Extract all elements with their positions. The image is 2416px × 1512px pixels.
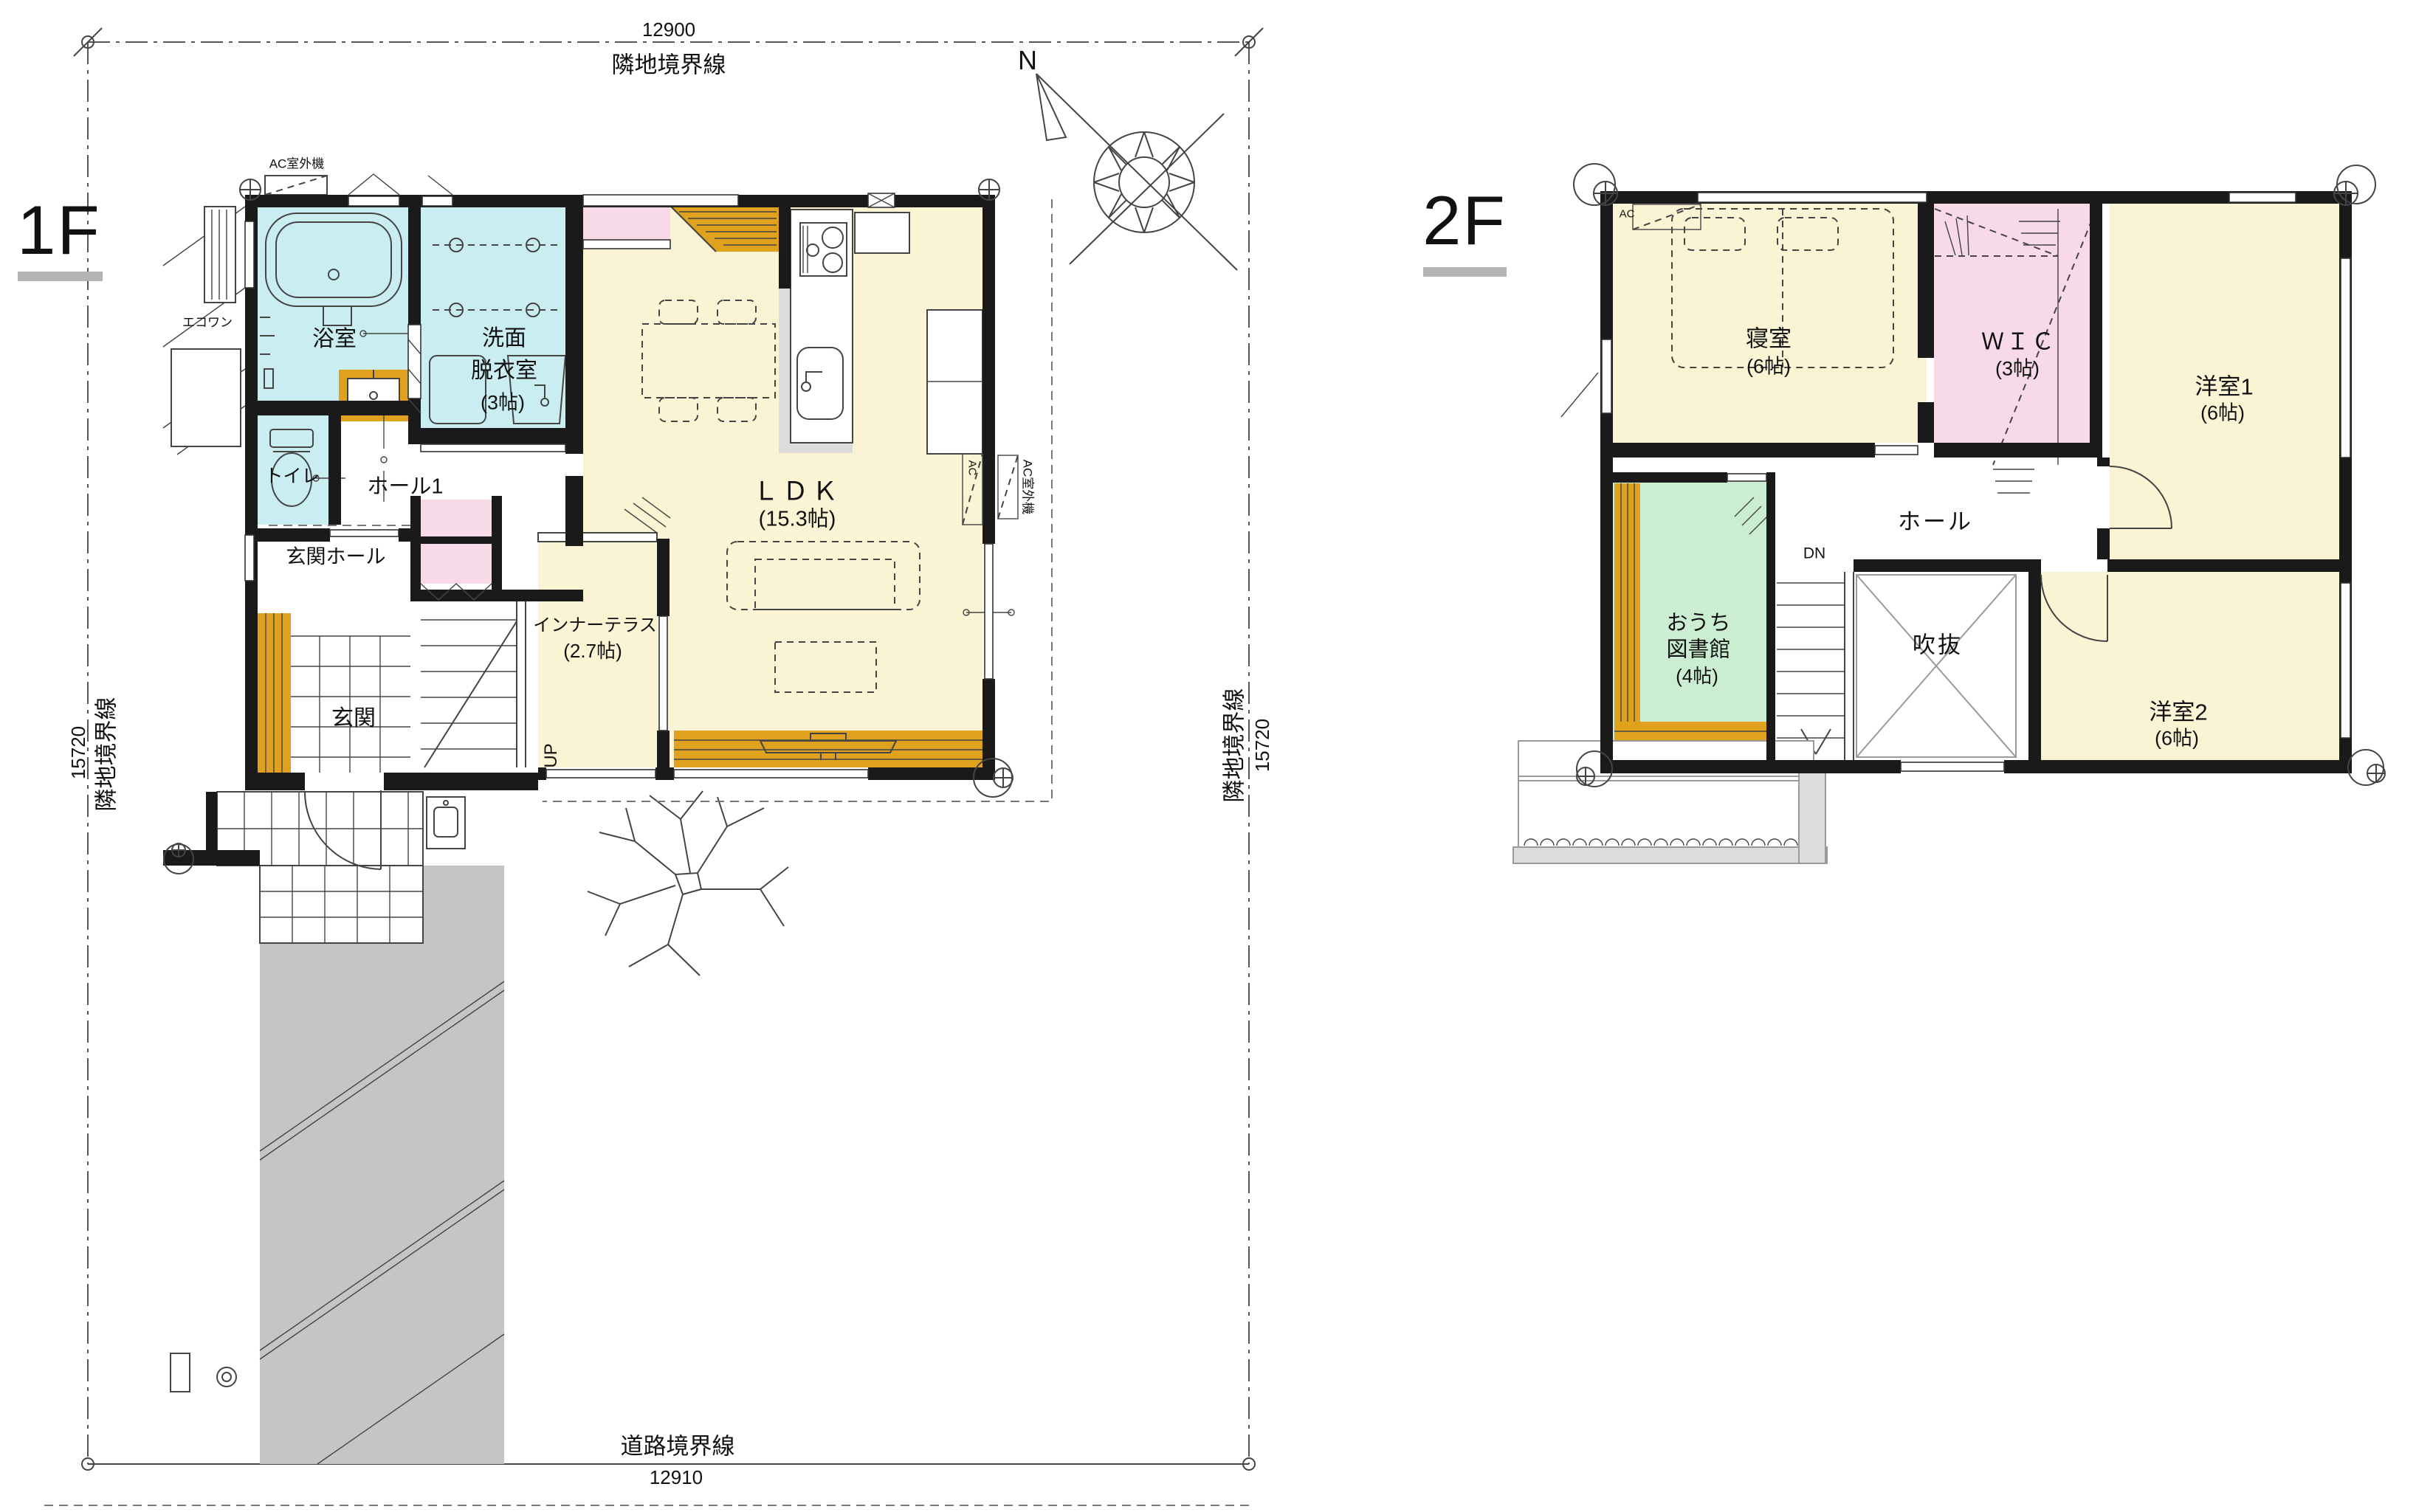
stairs-dn-label: DN [1803,546,1825,562]
floor2-title-underline [1423,267,1507,277]
room-label-library-1: おうち [1666,613,1730,635]
boundary-label-bottom: 道路境界線 [621,1435,735,1458]
floor1-title-underline [18,272,103,281]
room-label-western2: 洋室2 [2149,701,2207,724]
stairs-1f [421,601,526,767]
room-label-library-2: 図書館 [1666,640,1730,661]
room-label-western1: 洋室1 [2195,376,2253,398]
outdoor-sink [427,797,465,849]
room-label-hall2: ホール [1898,511,1973,534]
room-label-entrance-hall: 玄関ホール [286,548,386,567]
tv-board [674,731,982,767]
balcony-roof [1513,741,1827,863]
floor2-title: 2F [1422,186,1507,255]
room-label-ldk-size: (15.3帖) [759,509,836,531]
dim-bottom: 12910 [650,1468,703,1487]
room-label-toilet: トイレ [264,468,320,486]
tree-icon [588,791,788,976]
room-label-wic: ＷＩＣ [1981,331,2057,353]
floor1-rooms [258,206,982,773]
room-bedroom [1613,204,1927,443]
utility-markers [171,1353,236,1392]
driveway [260,866,504,1464]
boundary-label-top: 隣地境界線 [612,54,726,77]
stairs-up-label: UP [543,743,560,767]
void-x [1856,575,2016,757]
entrance-tiles [291,636,410,773]
boundary-label-right: 隣地境界線 [1223,688,1246,803]
compass-icon [1036,74,1237,270]
room-label-wic-size: (3帖) [1995,359,2040,379]
dim-right: 15720 [1253,719,1272,772]
room-label-washroom-1: 洗面 [482,328,526,350]
dim-left: 15720 [69,726,88,779]
room-label-western2-size: (6帖) [2155,729,2199,749]
room-label-entrance: 玄関 [331,708,376,730]
room-label-hall1: ホール1 [367,477,443,498]
compass-north-label: N [1018,47,1037,74]
ac-2f-label: AC [1620,209,1635,220]
ecoone-label: エコワン [182,317,233,329]
room-label-bedroom: 寝室 [1746,328,1792,351]
room-label-ldk: ＬＤＫ [753,479,842,505]
ac-outdoor-right-label: AC室外機 [1022,460,1034,515]
boundary-label-left: 隣地境界線 [95,697,118,812]
ac-outdoor-top-icon [265,176,327,195]
room-label-inner-terrace-size: (2.7帖) [563,641,622,660]
room-label-western1-size: (6帖) [2200,404,2245,424]
dim-top: 12900 [642,20,695,39]
room-label-washroom-2: 脱衣室 [471,360,537,382]
ac-outdoor-top-label: AC室外機 [269,158,325,170]
plan-linework [0,0,2416,1512]
room-label-inner-terrace: インナーテラス [533,617,657,635]
ecoone-unit [163,207,245,455]
room-label-bedroom-size: (6帖) [1746,357,1791,377]
floorplan-sheet: 1F 2F 12900 隣地境界線 15720 隣地境界線 隣地境界線 1572… [0,0,2416,1512]
room-label-void: 吹抜 [1913,634,1963,657]
room-label-washroom-size: (3帖) [481,393,525,413]
entrance-porch [217,792,423,943]
floor1-title: 1F [17,196,101,265]
room-label-bath: 浴室 [312,328,357,351]
ac-wall-label: AC [967,460,978,476]
room-label-library-size: (4帖) [1676,666,1718,686]
floor1-plan [44,28,1263,1505]
room-wic [1934,204,2090,443]
